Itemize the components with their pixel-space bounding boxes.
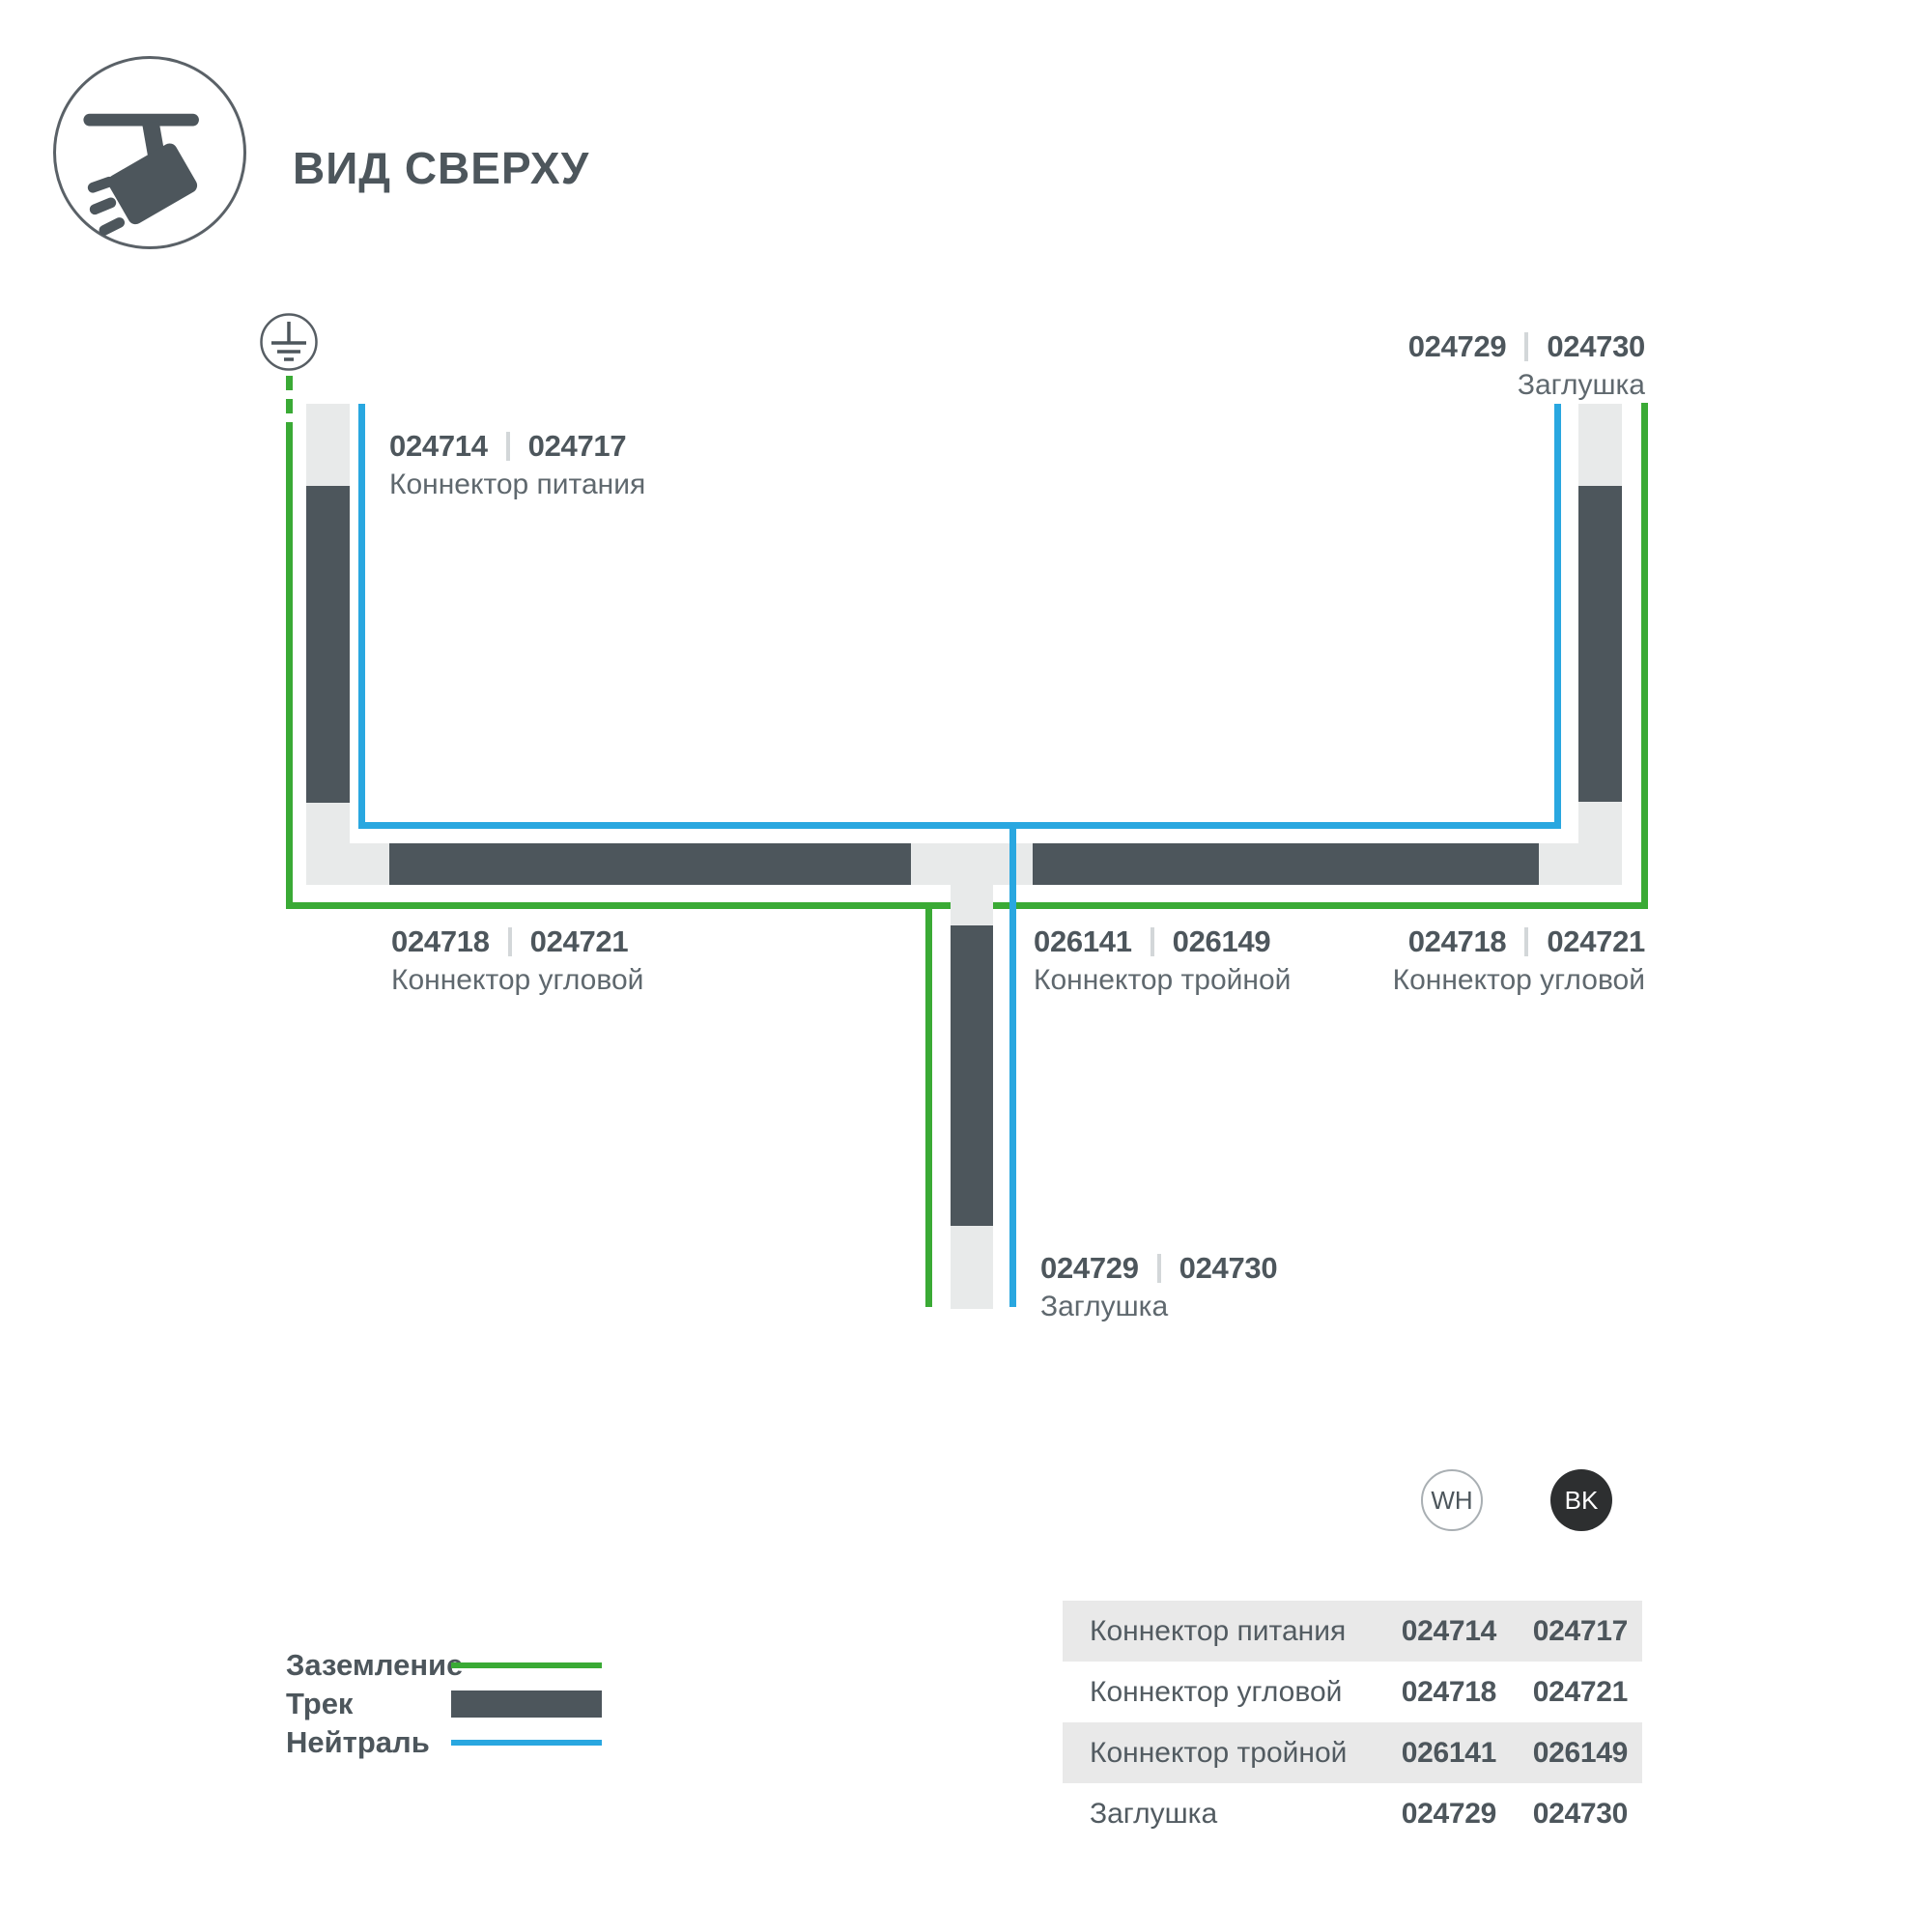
triple-connector-stem (951, 885, 993, 925)
header-badge (53, 56, 246, 249)
table-wh-code: 024729 (1365, 1798, 1496, 1831)
table-part-name: Коннектор питания (1063, 1615, 1365, 1648)
code-divider (1157, 1254, 1161, 1283)
part-code: 024717 (528, 429, 627, 464)
label-power-connector: 024714 024717 Коннектор питания (389, 429, 645, 501)
table-row: Коннектор тройной 026141 026149 (1063, 1722, 1642, 1783)
label-power-codes: 024714 024717 (389, 429, 645, 464)
table-row: Коннектор угловой 024718 024721 (1063, 1662, 1642, 1722)
label-corner-left-codes: 024718 024721 (391, 924, 643, 959)
parts-table: Коннектор питания 024714 024717 Коннекто… (1063, 1601, 1642, 1844)
track-spotlight-icon (55, 56, 244, 250)
legend-label: Трек (286, 1687, 451, 1721)
table-part-name: Коннектор угловой (1063, 1676, 1365, 1709)
code-divider (1524, 332, 1528, 361)
table-wh-code: 026141 (1365, 1737, 1496, 1770)
track-bar-swatch (451, 1690, 602, 1718)
label-corner-right-codes: 024718 024721 (1393, 924, 1645, 959)
blue-line-swatch (451, 1740, 602, 1746)
table-part-name: Заглушка (1063, 1798, 1365, 1831)
track-stem-endcap (951, 1226, 993, 1309)
neutral-wire-top (358, 822, 1561, 829)
label-triple-codes: 026141 026149 (1034, 924, 1291, 959)
legend-item-ground: Заземление (286, 1646, 602, 1685)
part-code: 024721 (1547, 924, 1645, 959)
part-code: 026149 (1173, 924, 1271, 959)
part-code: 024729 (1408, 329, 1507, 364)
track-left-segment (306, 486, 350, 803)
color-variant-white-badge: WH (1421, 1469, 1483, 1531)
table-bk-code: 024717 (1496, 1615, 1628, 1648)
legend-item-neutral: Нейтраль (286, 1723, 602, 1762)
legend-label: Нейтраль (286, 1725, 451, 1760)
part-code: 024718 (1408, 924, 1507, 959)
label-corner-connector-right: 024718 024721 Коннектор угловой (1393, 924, 1645, 997)
part-name: Заглушка (1040, 1291, 1277, 1323)
table-bk-code: 026149 (1496, 1737, 1628, 1770)
code-divider (508, 927, 512, 956)
table-row: Заглушка 024729 024730 (1063, 1783, 1642, 1844)
green-line-swatch (451, 1662, 602, 1668)
label-corner-connector-left: 024718 024721 Коннектор угловой (391, 924, 643, 997)
variant-black-label: BK (1565, 1486, 1599, 1516)
label-endcap-top-codes: 024729 024730 (1408, 329, 1645, 364)
ground-wire-dashed-segment (286, 376, 293, 426)
ground-wire-stem-branch (925, 909, 932, 1307)
variant-white-label: WH (1431, 1486, 1472, 1516)
code-divider (1151, 927, 1154, 956)
table-bk-code: 024721 (1496, 1676, 1628, 1709)
table-row: Коннектор питания 024714 024717 (1063, 1601, 1642, 1662)
label-endcap-top: 024729 024730 Заглушка (1408, 329, 1645, 402)
part-name: Коннектор тройной (1034, 964, 1291, 997)
track-lighting-top-view-page: { "header": { "title": "ВИД СВЕРХУ", "ic… (0, 0, 1932, 1932)
code-divider (1524, 927, 1528, 956)
track-right-segment (1578, 486, 1622, 802)
page-title: ВИД СВЕРХУ (293, 145, 589, 191)
track-horizontal-right-segment (1033, 843, 1539, 885)
part-code: 024730 (1547, 329, 1645, 364)
legend: Заземление Трек Нейтраль (286, 1646, 602, 1762)
part-name: Коннектор угловой (1393, 964, 1645, 997)
label-triple-connector: 026141 026149 Коннектор тройной (1034, 924, 1291, 997)
neutral-wire-right (1554, 404, 1561, 822)
table-part-name: Коннектор тройной (1063, 1737, 1365, 1770)
neutral-wire-left (358, 404, 365, 822)
table-wh-code: 024718 (1365, 1676, 1496, 1709)
color-variant-black-badge: BK (1550, 1469, 1612, 1531)
part-code: 026141 (1034, 924, 1132, 959)
table-wh-code: 024714 (1365, 1615, 1496, 1648)
part-name: Заглушка (1408, 369, 1645, 402)
label-endcap-bottom: 024729 024730 Заглушка (1040, 1251, 1277, 1323)
part-code: 024729 (1040, 1251, 1139, 1286)
track-horizontal-left-segment (389, 843, 911, 885)
part-name: Коннектор питания (389, 469, 645, 501)
part-code: 024730 (1179, 1251, 1278, 1286)
legend-label: Заземление (286, 1648, 451, 1683)
track-stem-segment (951, 925, 993, 1226)
ground-wire-left (286, 426, 293, 909)
ground-wire-right (1641, 403, 1648, 902)
code-divider (506, 432, 510, 461)
part-code: 024714 (389, 429, 488, 464)
table-bk-code: 024730 (1496, 1798, 1628, 1831)
neutral-wire-stem-branch (1009, 824, 1016, 1307)
label-endcap-bottom-codes: 024729 024730 (1040, 1251, 1277, 1286)
part-code: 024721 (530, 924, 629, 959)
earth-ground-icon (259, 312, 319, 372)
legend-item-track: Трек (286, 1685, 602, 1723)
part-code: 024718 (391, 924, 490, 959)
part-name: Коннектор угловой (391, 964, 643, 997)
